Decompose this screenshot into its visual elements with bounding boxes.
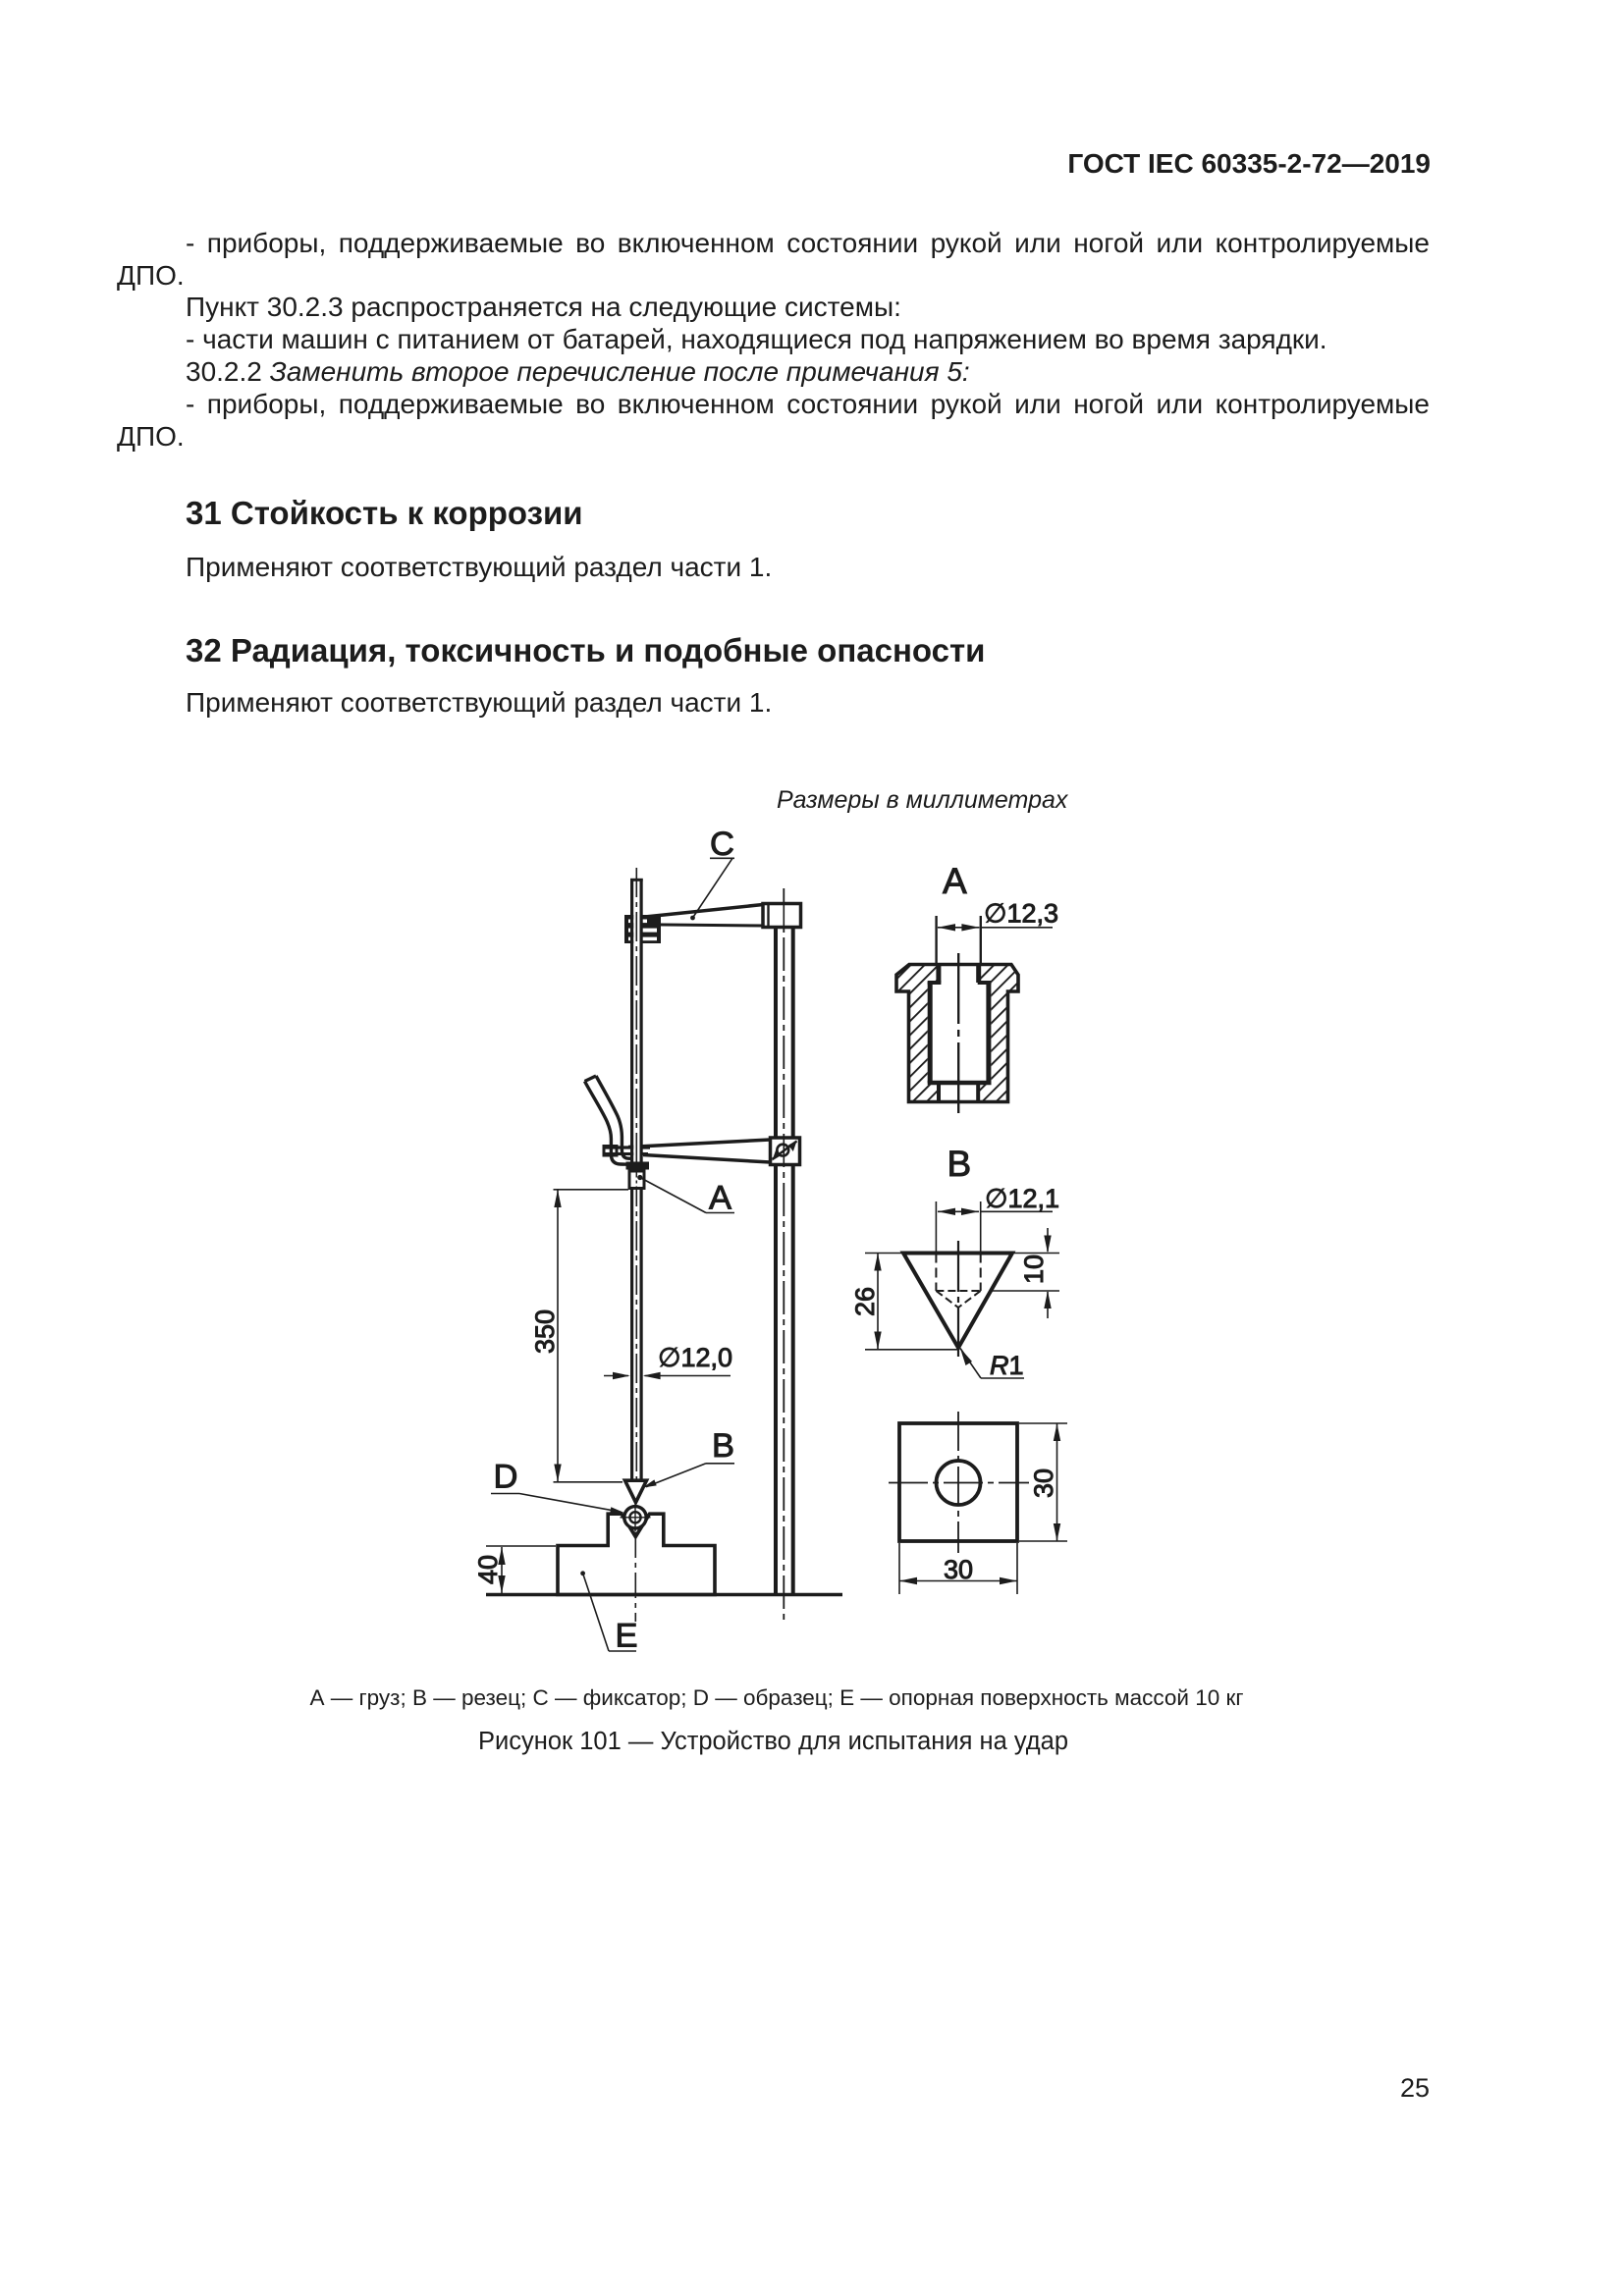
svg-text:∅12,3: ∅12,3 — [984, 899, 1058, 929]
svg-text:∅12,1: ∅12,1 — [985, 1184, 1059, 1213]
svg-text:R1: R1 — [990, 1351, 1024, 1380]
svg-text:Е: Е — [616, 1617, 638, 1654]
svg-text:30: 30 — [944, 1555, 973, 1584]
svg-text:∅12,0: ∅12,0 — [658, 1343, 732, 1372]
svg-text:А: А — [709, 1180, 731, 1217]
svg-text:350: 350 — [530, 1309, 560, 1354]
svg-text:30: 30 — [1029, 1468, 1058, 1498]
svg-text:D: D — [494, 1459, 518, 1496]
svg-text:А: А — [943, 861, 967, 901]
svg-text:10: 10 — [1019, 1255, 1049, 1284]
svg-text:26: 26 — [850, 1287, 880, 1316]
svg-text:В: В — [947, 1144, 972, 1184]
svg-text:C: C — [710, 826, 734, 863]
svg-text:В: В — [712, 1427, 734, 1465]
svg-text:40: 40 — [473, 1555, 503, 1584]
